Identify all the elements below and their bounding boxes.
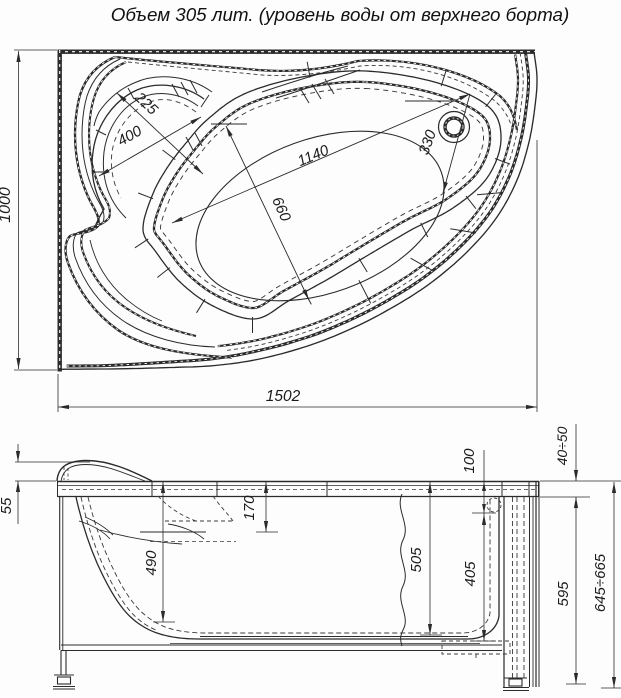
svg-text:490: 490	[143, 550, 160, 576]
svg-text:595: 595	[555, 581, 572, 607]
svg-text:1502: 1502	[266, 388, 301, 405]
svg-text:170: 170	[241, 495, 258, 521]
svg-text:40÷50: 40÷50	[554, 426, 570, 465]
svg-text:405: 405	[462, 561, 479, 587]
svg-text:1000: 1000	[0, 187, 14, 223]
svg-text:645÷665: 645÷665	[592, 553, 609, 612]
svg-text:55: 55	[0, 497, 15, 514]
svg-text:100: 100	[461, 448, 478, 474]
svg-text:505: 505	[408, 547, 425, 573]
svg-text:Объем 305 лит. (уровень воды о: Объем 305 лит. (уровень воды от верхнего…	[111, 4, 570, 25]
